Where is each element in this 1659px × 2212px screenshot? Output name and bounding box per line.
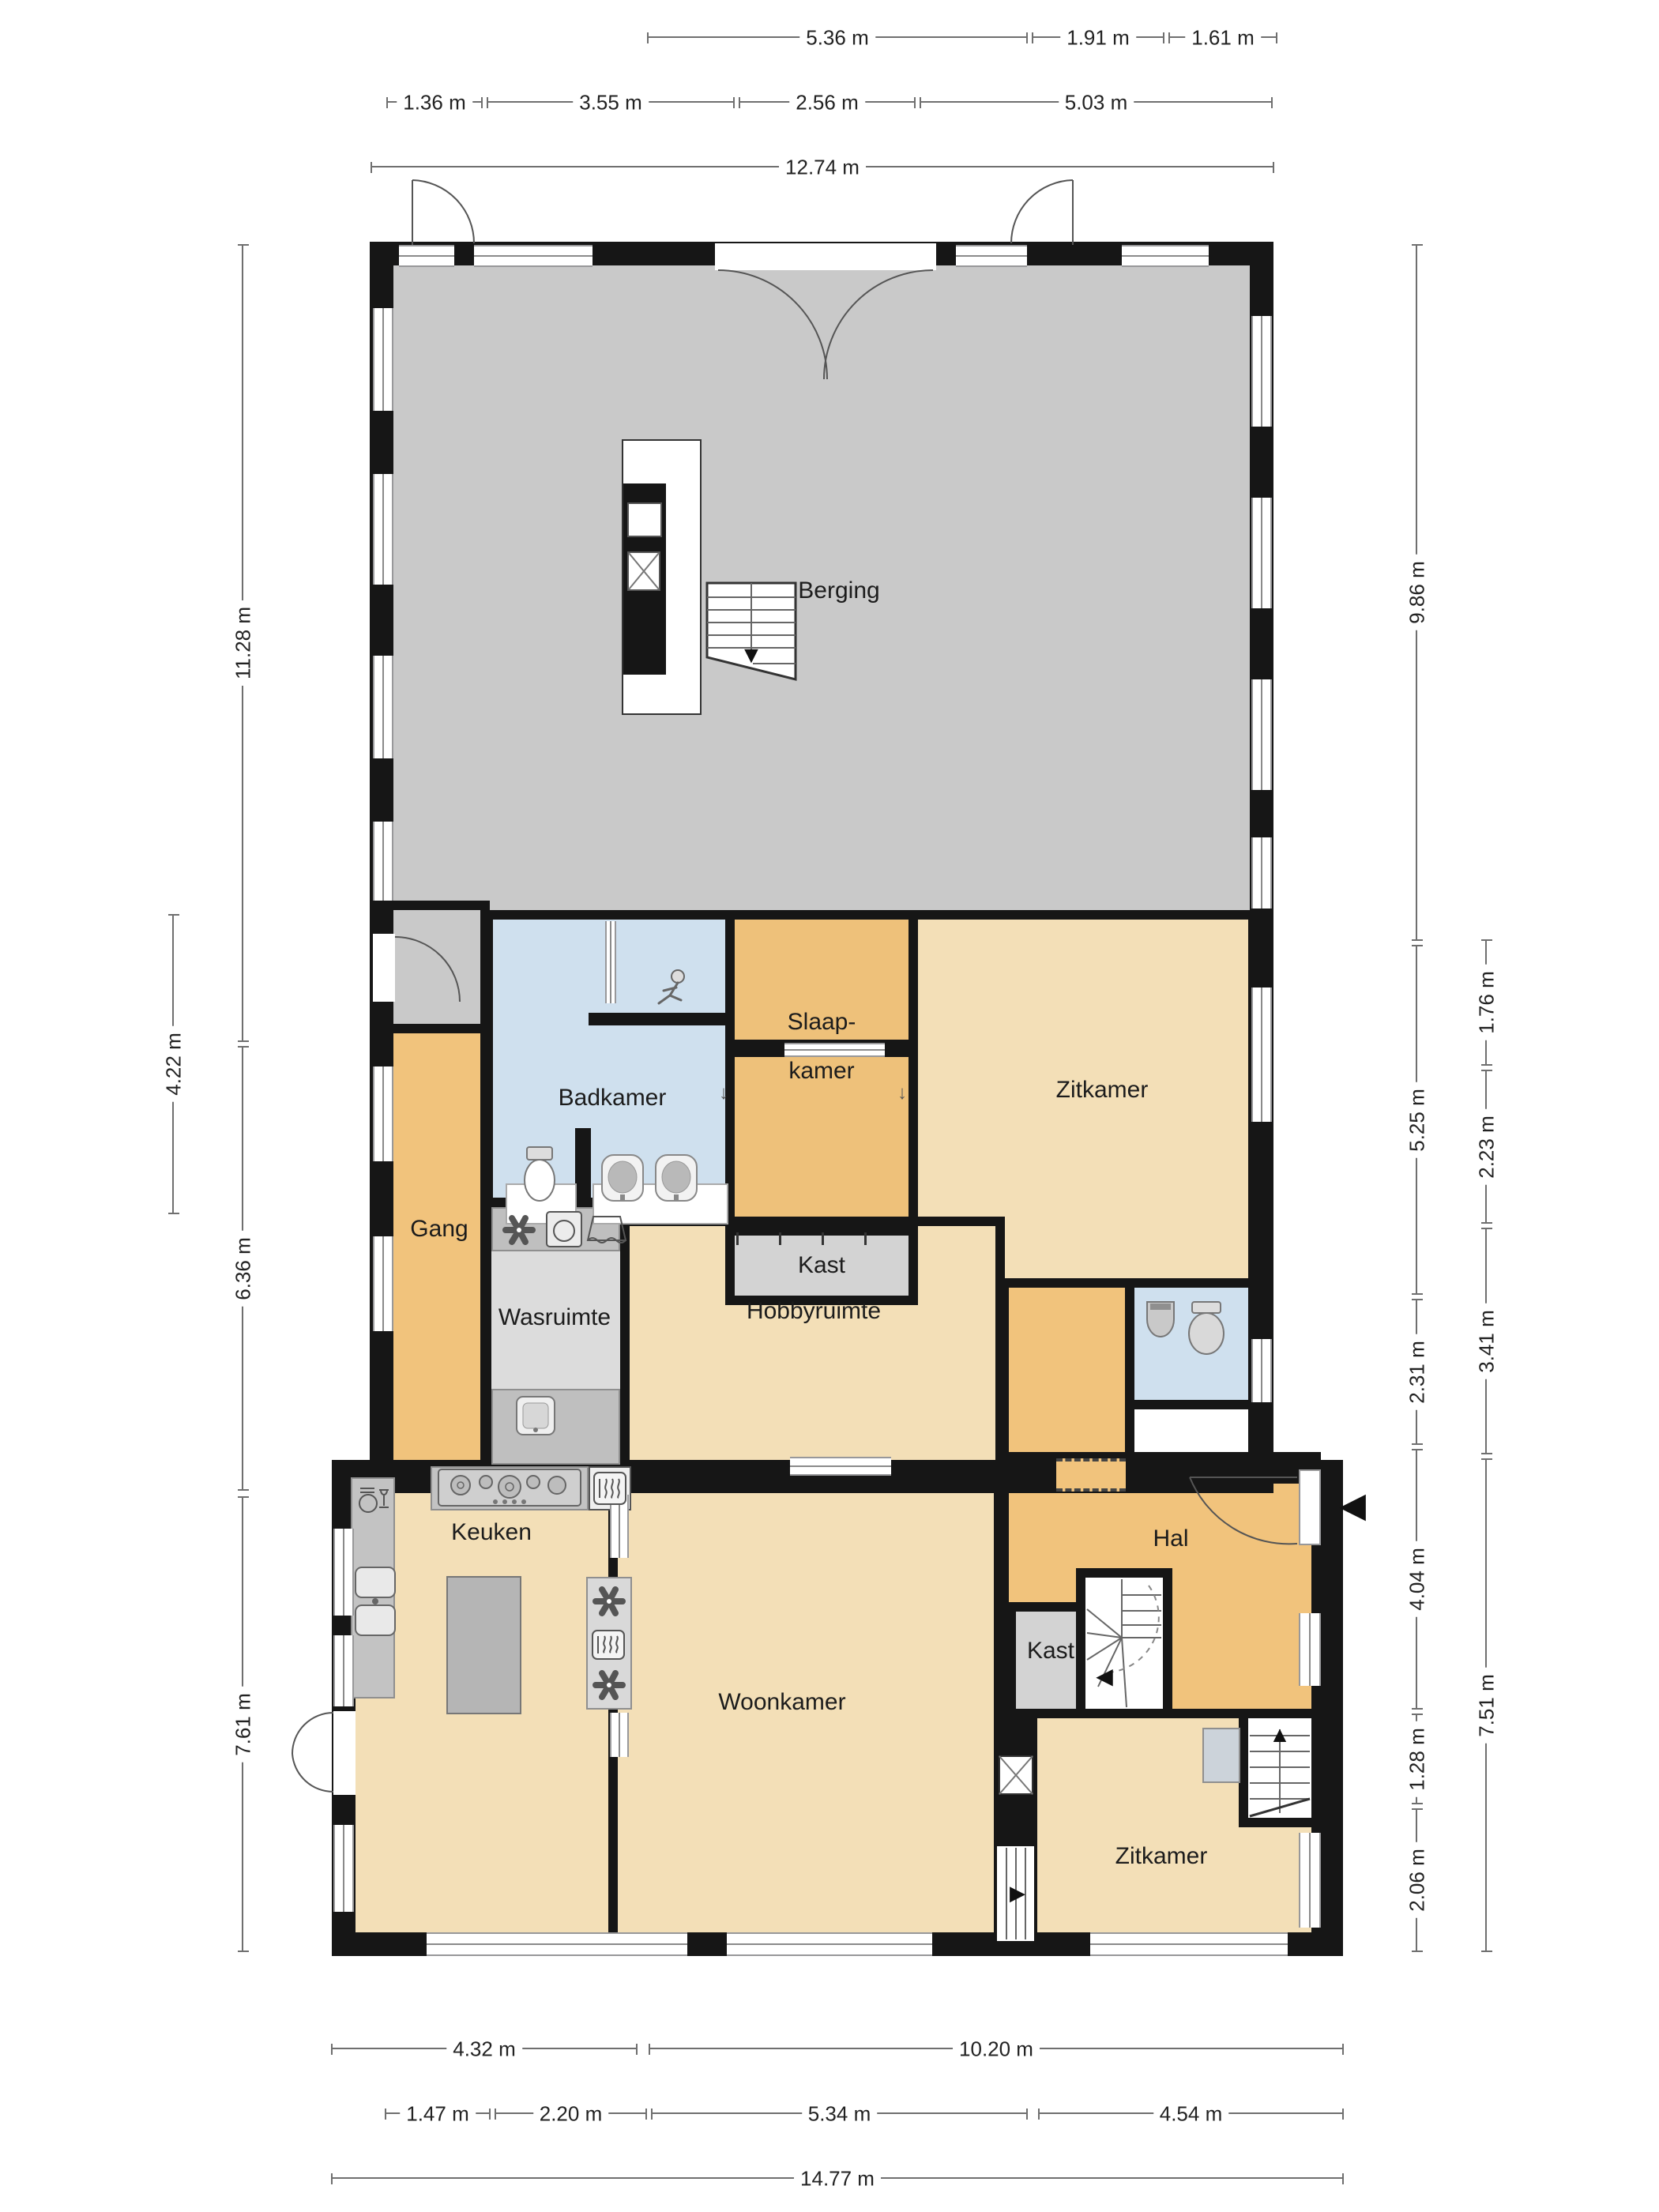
dim-top1-161: 1.61 m xyxy=(1169,36,1277,38)
label-hobbyruimte: Hobbyruimte xyxy=(747,1298,881,1325)
label-gang: Gang xyxy=(410,1216,468,1243)
dim-right-525: 5.25 m xyxy=(1416,946,1417,1294)
window-right-3 xyxy=(1251,679,1272,790)
window-top-3 xyxy=(956,245,1027,267)
label-slaapkamer-2: kamer xyxy=(788,1058,854,1085)
door-gap-hal-front xyxy=(1299,1469,1321,1545)
window-hal-right xyxy=(1299,1613,1321,1686)
window-toilet xyxy=(1251,1339,1272,1402)
island-niche xyxy=(627,502,662,537)
dim-bot2-147: 1.47 m xyxy=(386,2112,490,2114)
dim-top2-503: 5.03 m xyxy=(920,101,1272,103)
dim-top2-256: 2.56 m xyxy=(739,101,915,103)
window-bottom-keuken xyxy=(427,1932,687,1956)
window-zitkamer-beneden-right xyxy=(1299,1833,1321,1928)
window-left-4 xyxy=(373,822,393,901)
window-right-1 xyxy=(1251,316,1272,427)
dim-right-404: 4.04 m xyxy=(1416,1450,1417,1709)
dim-right-231: 2.31 m xyxy=(1416,1300,1417,1444)
berging-stairs-down-arrow-icon: ▼ xyxy=(739,644,763,668)
wall-badkamer-pillar xyxy=(575,1128,591,1210)
toilet-icon xyxy=(521,1145,558,1202)
window-zitkamer-boven xyxy=(1251,987,1272,1122)
window-bottom-woonkamer xyxy=(727,1932,932,1956)
door-arc-keuken-double xyxy=(264,1710,333,1795)
door-swing-arrow-slaapkamer: ↓ xyxy=(897,1084,907,1103)
dim-top-total: 12.74 m xyxy=(371,166,1273,167)
entrance-arrow-icon: ◀ xyxy=(1339,1488,1366,1523)
label-kast-boven: Kast xyxy=(798,1252,845,1279)
door-arc-hal-front xyxy=(1185,1474,1299,1545)
window-slaapkamer-divider xyxy=(784,1043,885,1057)
kitchen-sink-icon xyxy=(354,1566,398,1637)
room-gang xyxy=(379,1024,490,1476)
shower-glass xyxy=(605,921,616,1003)
window-gang-2 xyxy=(373,1236,393,1331)
dishwasher-icon xyxy=(357,1482,392,1517)
dim-right-outer-751: 7.51 m xyxy=(1485,1459,1487,1951)
dim-right-206: 2.06 m xyxy=(1416,1809,1417,1951)
gas-hob-icon xyxy=(437,1468,582,1509)
label-wasruimte: Wasruimte xyxy=(498,1304,611,1331)
dim-left-636: 6.36 m xyxy=(242,1047,243,1490)
dim-bot2-534: 5.34 m xyxy=(652,2112,1027,2114)
ventilation-fan-icon-1 xyxy=(501,1212,537,1248)
dim-top1-191: 1.91 m xyxy=(1033,36,1164,38)
shower-person-icon xyxy=(654,969,689,1013)
window-hobby-hal xyxy=(790,1457,891,1476)
dim-bot2-220: 2.20 m xyxy=(495,2112,646,2114)
toilet-room-sink-icon xyxy=(1144,1300,1177,1340)
label-keuken: Keuken xyxy=(451,1519,532,1546)
window-top-2 xyxy=(474,245,592,267)
zitkamer-niche xyxy=(1202,1728,1240,1783)
dim-right-128: 1.28 m xyxy=(1416,1714,1417,1804)
ventilation-fan-icon-2 xyxy=(591,1583,627,1619)
window-gang-1 xyxy=(373,1066,393,1161)
dim-top2-136: 1.36 m xyxy=(387,101,482,103)
winder-stairs-arrow-icon: ◀ xyxy=(1096,1665,1113,1687)
ventilation-fan-icon-3 xyxy=(591,1667,627,1703)
window-left-1 xyxy=(373,308,393,411)
window-top-1 xyxy=(399,245,454,267)
washing-machine-icon xyxy=(545,1210,583,1248)
keuken-island xyxy=(446,1576,521,1714)
door-arc-exterior-left xyxy=(411,179,476,245)
island-shaft-cross-icon xyxy=(627,551,660,591)
door-arc-gang xyxy=(395,934,463,1002)
label-woonkamer: Woonkamer xyxy=(718,1689,845,1716)
label-berging: Berging xyxy=(798,577,879,604)
door-arc-exterior-right xyxy=(1010,179,1074,245)
dim-bot-total: 14.77 m xyxy=(332,2177,1343,2179)
drying-rack-icon xyxy=(586,1213,627,1247)
window-keuken-left-3 xyxy=(333,1825,354,1912)
dim-left-761: 7.61 m xyxy=(242,1497,243,1951)
door-gap-berging-double xyxy=(715,243,936,270)
chimney-icon xyxy=(999,1755,1033,1795)
wasruimte-sink-icon xyxy=(515,1395,556,1436)
window-right-2 xyxy=(1251,498,1272,608)
dim-left-1128: 11.28 m xyxy=(242,245,243,1041)
dim-right-outer-223: 2.23 m xyxy=(1485,1070,1487,1223)
cellar-steps-arrow-icon: ▶ xyxy=(1010,1883,1025,1903)
wall-shower xyxy=(589,1013,727,1025)
dim-top2-355: 3.55 m xyxy=(487,101,734,103)
door-gap-gang-left xyxy=(373,934,395,1002)
window-right-4 xyxy=(1251,837,1272,908)
toilet-room-toilet-icon xyxy=(1185,1300,1228,1356)
door-arc-berging-double xyxy=(715,270,936,382)
floor-plan: ▼ ◀ ▲ ▶ xyxy=(0,0,1659,2212)
room-corridor xyxy=(999,1278,1134,1461)
dim-bot2-454: 4.54 m xyxy=(1039,2112,1343,2114)
label-slaapkamer-1: Slaap- xyxy=(788,1009,856,1036)
door-gap-keuken-double xyxy=(333,1711,355,1795)
upstairs-arrow-icon: ▲ xyxy=(1269,1724,1291,1746)
oven-icon-wall xyxy=(592,1471,627,1506)
door-swing-arrow-badkamer: ↓ xyxy=(719,1084,728,1103)
window-keuken-woonkamer-2 xyxy=(610,1713,629,1757)
window-left-3 xyxy=(373,656,393,758)
dim-right-outer-176: 1.76 m xyxy=(1485,940,1487,1065)
label-zitkamer-boven: Zitkamer xyxy=(1056,1077,1149,1104)
winder-stairs xyxy=(1085,1578,1163,1709)
window-top-4 xyxy=(1122,245,1209,267)
label-hal: Hal xyxy=(1153,1525,1188,1552)
kast-boven-rail xyxy=(736,1232,907,1245)
dim-bot1-432: 4.32 m xyxy=(332,2048,637,2049)
oven-icon-tower xyxy=(591,1629,626,1661)
window-bottom-zitkamer xyxy=(1090,1932,1288,1956)
dim-top1-536: 5.36 m xyxy=(648,36,1027,38)
opening-corridor-hal xyxy=(1056,1458,1126,1492)
label-kast-beneden: Kast xyxy=(1027,1638,1074,1665)
dim-bot1-1020: 10.20 m xyxy=(649,2048,1343,2049)
window-keuken-left-1 xyxy=(333,1529,354,1616)
sink-icon-1 xyxy=(600,1153,645,1204)
sink-icon-2 xyxy=(654,1153,698,1204)
dim-right-986: 9.86 m xyxy=(1416,245,1417,940)
dim-right-outer-341: 3.41 m xyxy=(1485,1228,1487,1454)
window-left-2 xyxy=(373,474,393,585)
dim-left-outer-422: 4.22 m xyxy=(172,915,174,1213)
label-badkamer: Badkamer xyxy=(559,1085,667,1112)
window-keuken-left-2 xyxy=(333,1635,354,1706)
label-zitkamer-beneden: Zitkamer xyxy=(1115,1843,1208,1870)
